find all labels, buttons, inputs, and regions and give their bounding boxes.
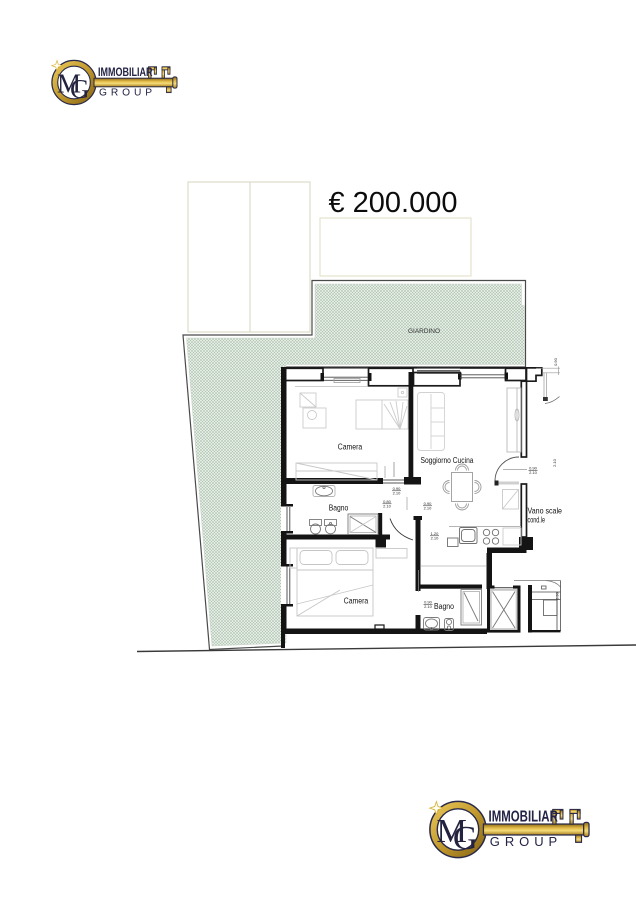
svg-text:GIARDINO: GIARDINO	[408, 328, 440, 335]
svg-text:Vano scale: Vano scale	[528, 507, 563, 516]
svg-text:2.10: 2.10	[383, 504, 392, 509]
svg-text:2.10: 2.10	[424, 604, 433, 609]
svg-text:Camera: Camera	[338, 442, 363, 452]
svg-text:2.10: 2.10	[424, 506, 433, 511]
svg-text:2.10: 2.10	[552, 458, 557, 467]
svg-text:cond.le: cond.le	[528, 516, 546, 525]
svg-text:Bagno: Bagno	[329, 503, 349, 513]
svg-text:2.10: 2.10	[529, 470, 538, 475]
svg-text:Bagno: Bagno	[434, 601, 454, 611]
svg-text:€ 200.000: € 200.000	[328, 187, 457, 219]
svg-text:Soggiorno Cucina: Soggiorno Cucina	[421, 455, 474, 465]
svg-text:2.10: 2.10	[393, 491, 402, 496]
svg-text:2.10: 2.10	[431, 536, 440, 541]
svg-text:0.90: 0.90	[556, 592, 560, 599]
svg-text:0.90: 0.90	[553, 357, 558, 366]
svg-text:Camera: Camera	[344, 596, 369, 606]
